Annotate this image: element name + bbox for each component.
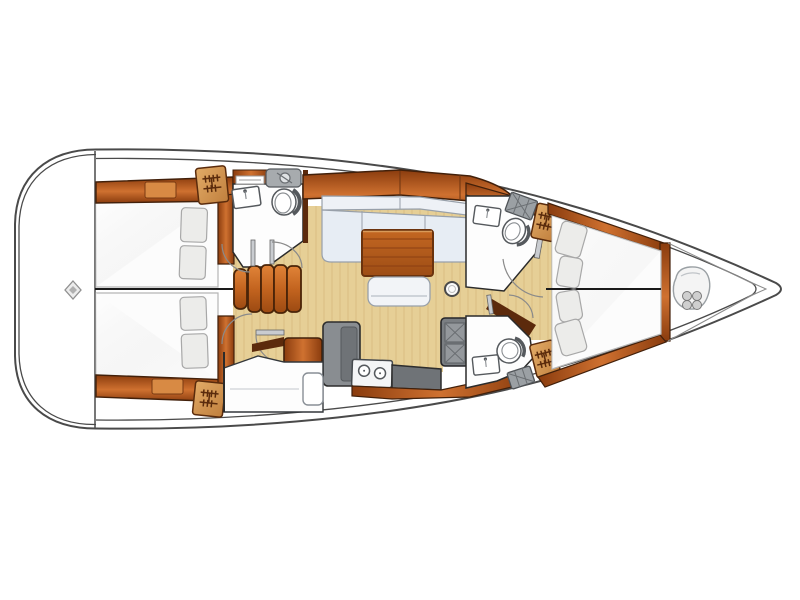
saloon-table — [362, 230, 433, 276]
sink — [232, 186, 261, 209]
hanging-locker — [195, 166, 229, 205]
pillow — [179, 246, 206, 280]
door-panel — [270, 240, 274, 264]
galley-worktop — [392, 365, 441, 390]
stove-burner-icon — [445, 323, 465, 342]
pillow — [556, 255, 584, 289]
galley-cabinet — [284, 338, 322, 365]
sink — [473, 205, 501, 226]
saloon-bench — [368, 277, 430, 306]
floor-plan-canvas — [0, 0, 800, 600]
cabinet-hatch — [152, 379, 183, 394]
vanity-basin — [266, 169, 301, 187]
pillow — [180, 297, 207, 331]
nav-seat — [303, 373, 323, 405]
toilet — [272, 189, 300, 215]
door-panel — [256, 330, 284, 335]
hanging-locker — [192, 381, 225, 418]
companionway-stairs — [234, 265, 301, 313]
pillow — [181, 334, 208, 369]
yacht-floor-plan — [0, 0, 800, 600]
compression-post-icon — [445, 282, 459, 296]
galley-stove — [441, 318, 469, 366]
cabinet-hatch — [145, 182, 176, 198]
stove-burner-icon — [445, 344, 465, 363]
galley-sink — [352, 359, 393, 387]
sink — [472, 355, 500, 376]
pillow — [180, 208, 207, 243]
pillow — [555, 289, 583, 323]
head-side-cabinet — [218, 194, 234, 264]
door-panel — [251, 240, 255, 266]
anchor-windlass-icon — [673, 267, 709, 310]
